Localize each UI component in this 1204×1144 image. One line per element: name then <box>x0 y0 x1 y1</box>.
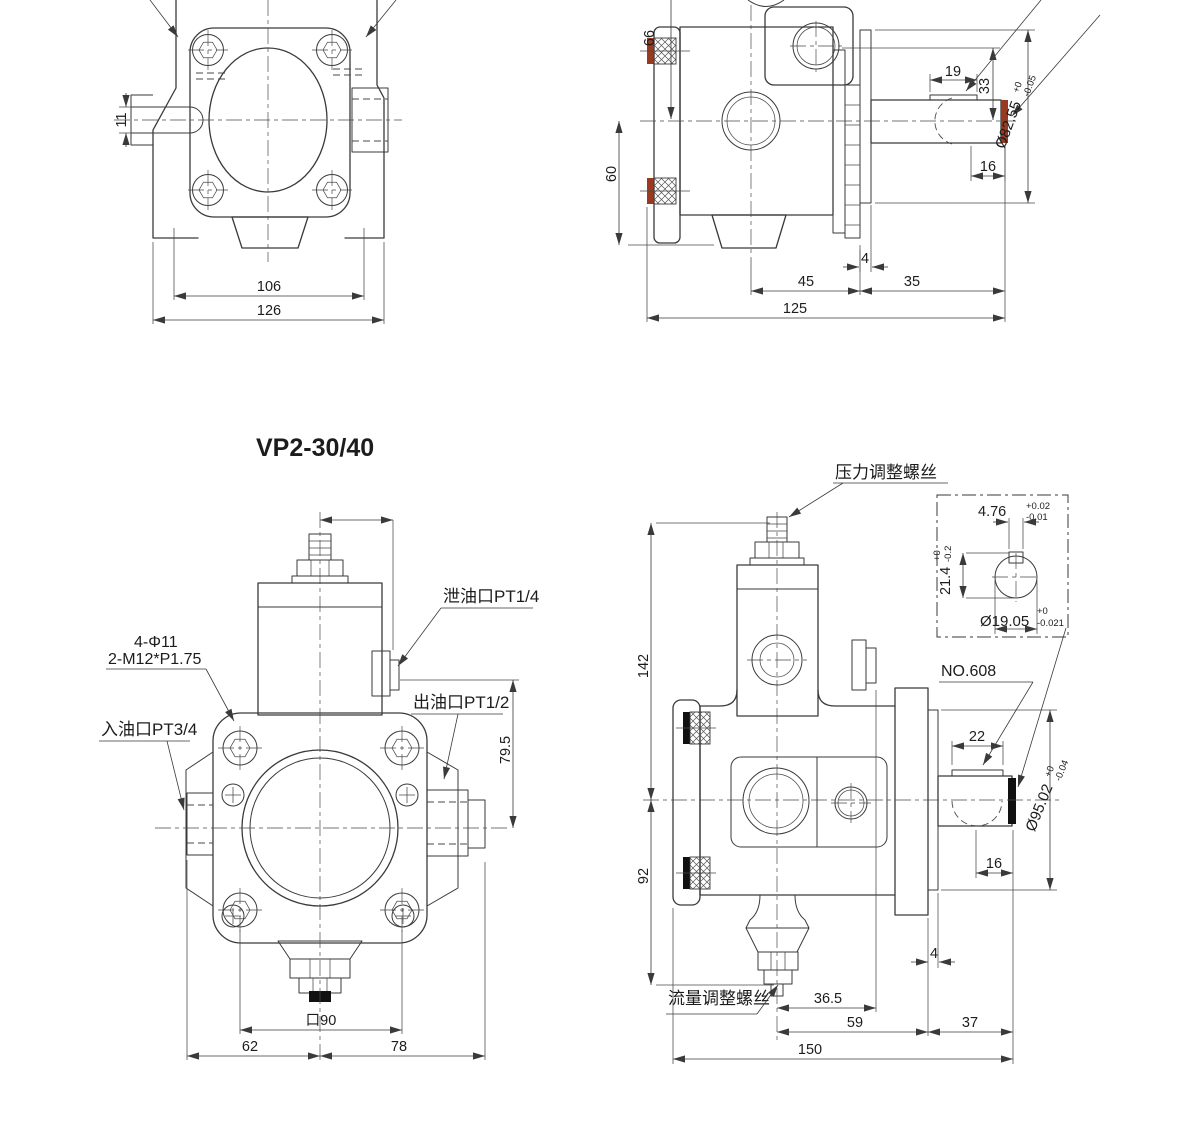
dim-126-label: 126 <box>257 303 281 319</box>
dim-11-label: 11 <box>114 112 130 127</box>
dim-33-label: 33 <box>977 78 993 94</box>
dimension-key-height: 21.4 +0 -0.2 <box>932 546 1014 598</box>
dimension-45: 45 <box>751 245 860 295</box>
drawing-canvas: 11 106 126 66 <box>0 0 1204 1144</box>
dimension-33: 33 <box>842 48 1000 120</box>
dim-37-label: 37 <box>962 1015 978 1031</box>
thread-label: 2-M12*P1.75 <box>108 651 201 668</box>
drain-label: 泄油口PT1/4 <box>443 587 539 606</box>
label-bolt-holes: 4-Φ11 2-M12*P1.75 <box>106 634 234 721</box>
dimension-4: 4 <box>911 893 955 968</box>
dimension-22: 22 <box>952 729 1003 765</box>
label-outlet-port: 出油口PT1/2 <box>411 693 509 779</box>
dim-62-label: 62 <box>242 1039 258 1055</box>
dimension-125: 125 <box>647 146 1005 322</box>
pump-body-outline <box>131 0 388 248</box>
dim-106-label: 106 <box>257 279 281 295</box>
label-bearing: NO.608 <box>939 663 1033 765</box>
dim-19-label: 19 <box>945 64 961 80</box>
valve-housing <box>258 583 399 715</box>
dimension-92: 92 <box>636 800 774 985</box>
front-view-large: 79.5 口90 62 78 4-Φ11 2-M12*P1.75 入油口PT3/… <box>99 512 539 1062</box>
dimension-key-width: 4.76 +0.02 -0.01 <box>978 501 1050 523</box>
dim-16-label: 16 <box>980 159 996 175</box>
side-view-small: 66 60 19 33 Ø82.55 +0 -0.05 16 4 <box>604 0 1100 322</box>
inlet-label: 入油口PT3/4 <box>101 720 197 739</box>
dim-59-label: 59 <box>847 1015 863 1031</box>
dim-125-label: 125 <box>783 301 807 317</box>
dim-78-label: 78 <box>391 1039 407 1055</box>
dimension-shaft-diameter: Ø19.05 +0 -0.021 <box>980 580 1064 634</box>
key-width-label: 4.76 <box>978 504 1006 520</box>
key-height-tol-upper: +0 <box>932 550 943 561</box>
dimension-35: 35 <box>860 274 1005 291</box>
label-drain-port: 泄油口PT1/4 <box>398 587 539 666</box>
dimension-37: 37 <box>928 1015 1013 1032</box>
seal-gaskets <box>676 712 716 889</box>
dimension-11: 11 <box>114 93 131 147</box>
outlet-label: 出油口PT1/2 <box>413 693 509 712</box>
centerlines <box>640 5 1016 258</box>
key-width-tol-lower: -0.01 <box>1026 512 1048 523</box>
dim-36-5-label: 36.5 <box>814 991 842 1007</box>
pump-dimension-drawing: 11 106 126 66 <box>0 0 1204 1144</box>
key-height-tol-lower: -0.2 <box>943 546 954 562</box>
dimension-59: 59 <box>777 918 928 1036</box>
bolt-holes-label: 4-Φ11 <box>134 634 178 651</box>
shaft-dia-tol-upper: +0 <box>1037 606 1048 617</box>
flow-screw-label: 流量调整螺丝 <box>668 989 770 1008</box>
label-inlet-port: 入油口PT3/4 <box>99 720 197 810</box>
shaft-dia-label: Ø19.05 <box>980 613 1029 630</box>
dimension-36-5: 36.5 <box>777 690 876 1012</box>
dim-142-label: 142 <box>636 654 652 678</box>
dim-4-label: 4 <box>930 946 938 962</box>
dim-150-label: 150 <box>798 1042 822 1058</box>
dimension-106: 106 <box>174 228 364 300</box>
dimension-16: 16 <box>971 145 1005 181</box>
dim-16-label: 16 <box>986 856 1002 872</box>
valve-housing <box>737 565 876 716</box>
dia-82-tol-lower: -0.05 <box>1021 74 1039 98</box>
flange-bolts <box>218 726 424 932</box>
pump-body-outline <box>654 0 1001 248</box>
keyway-detail: 4.76 +0.02 -0.01 21.4 +0 -0.2 Ø19.05 +0 … <box>932 495 1068 637</box>
pressure-screw-label: 压力调整螺丝 <box>835 463 937 482</box>
centerlines <box>114 0 402 262</box>
flow-screw <box>746 895 809 996</box>
model-title: VP2-30/40 <box>256 434 374 462</box>
front-view-small: 11 106 126 <box>114 0 402 324</box>
dim-66-label: 66 <box>642 30 658 46</box>
dim-35-label: 35 <box>904 274 920 290</box>
dimension-16: 16 <box>976 830 1013 878</box>
dim-79-5-label: 79.5 <box>498 736 514 764</box>
dia-95-tol-lower: -0.04 <box>1053 759 1071 783</box>
label-pressure-screw: 压力调整螺丝 <box>789 463 948 517</box>
dimension-19: 19 <box>930 64 977 92</box>
dia-95-label: Ø95.02 <box>1022 782 1056 834</box>
bearing-label: NO.608 <box>941 663 996 680</box>
side-view-large: 压力调整螺丝 流量调整螺丝 142 92 36.5 59 37 150 4 <box>636 463 1071 1064</box>
dimension-square-90: 口90 <box>240 930 402 1034</box>
label-flow-screw: 流量调整螺丝 <box>666 985 778 1014</box>
dim-22-label: 22 <box>969 729 985 745</box>
dim-45-label: 45 <box>798 274 814 290</box>
dim-4-label: 4 <box>861 251 869 267</box>
key-height-label: 21.4 <box>938 567 954 595</box>
key-width-tol-upper: +0.02 <box>1026 501 1050 512</box>
shaft-end-cap <box>1008 778 1016 824</box>
dim-60-label: 60 <box>604 166 620 182</box>
dim-92-label: 92 <box>636 868 652 884</box>
dia-82-label: Ø82.55 <box>992 99 1025 151</box>
dim-sq90-label: 口90 <box>306 1013 337 1029</box>
cropped-leader-lines <box>150 0 396 37</box>
shaft-dia-tol-lower: -0.021 <box>1037 618 1064 629</box>
pump-body <box>673 688 1012 915</box>
